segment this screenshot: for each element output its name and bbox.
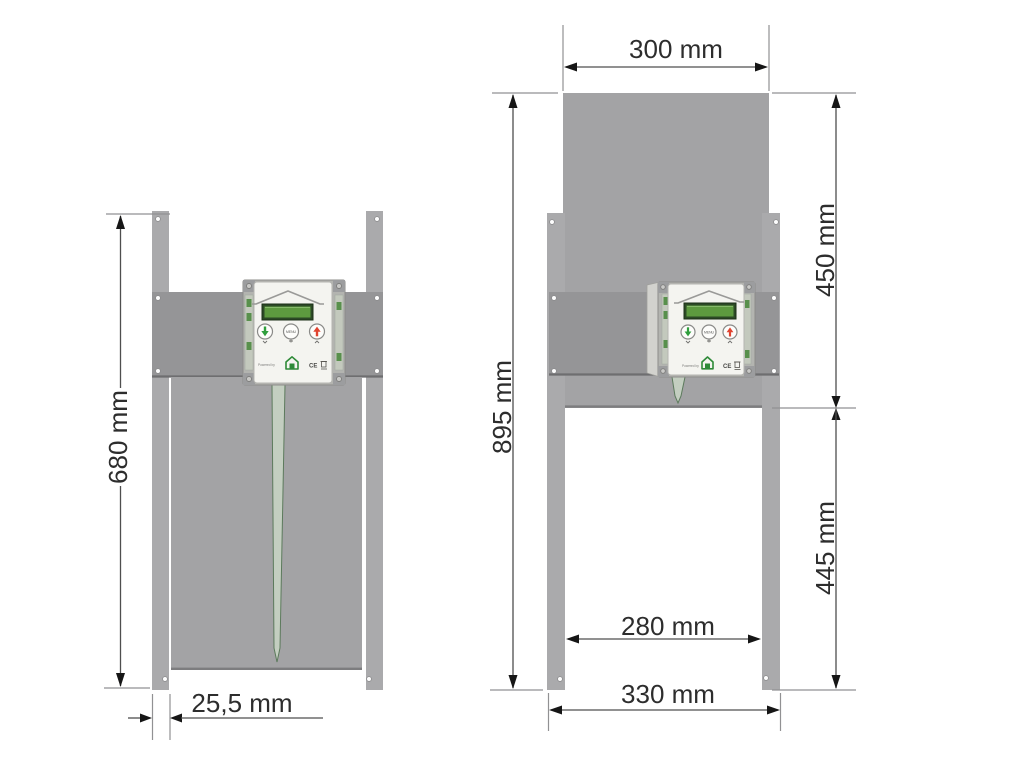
upper-height-dimension-label: 450 mm — [810, 203, 840, 297]
screw-hole — [156, 296, 161, 301]
left-view-rail-left — [152, 211, 169, 690]
opening-width-dimension-label: 280 mm — [621, 611, 715, 641]
lower-height-dimension-label: 445 mm — [810, 501, 840, 595]
screw-hole — [764, 676, 769, 681]
outer-width-dimension-label: 330 mm — [621, 679, 715, 709]
terminal-block — [337, 302, 342, 310]
height-dimension-label: 680 mm — [103, 390, 133, 484]
powered-by-label: Powered by — [258, 363, 275, 367]
left-view: MENU Powered by CE — [101, 211, 383, 740]
lcd-screen — [265, 307, 311, 318]
screw-icon — [337, 284, 342, 289]
menu-button-label: MENU — [704, 330, 715, 334]
powered-by-label: Powered by — [682, 364, 699, 368]
screw-hole — [774, 220, 779, 225]
dimension-280: 280 mm — [566, 611, 761, 644]
terminal-block — [337, 353, 342, 361]
ce-mark-label: CE — [309, 364, 317, 370]
screw-hole — [375, 217, 380, 222]
left-view-door-panel — [171, 377, 362, 670]
dimension-300: 300 mm — [563, 25, 769, 91]
dimension-25-5: 25,5 mm — [128, 688, 323, 740]
screw-hole — [367, 677, 372, 682]
screw-icon — [247, 377, 252, 382]
screw-icon — [337, 377, 342, 382]
terminal-block — [247, 313, 252, 321]
screw-icon — [247, 284, 252, 289]
menu-button-label: MENU — [286, 330, 297, 334]
total-height-dimension-label: 895 mm — [487, 360, 517, 454]
screw-hole — [772, 369, 777, 374]
screw-hole — [550, 220, 555, 225]
screw-hole — [163, 677, 168, 682]
control-unit-perspective: MENU Powered by CE — [647, 282, 755, 377]
screw-hole — [552, 369, 557, 374]
rail-depth-dimension-label: 25,5 mm — [191, 688, 292, 718]
screw-hole — [558, 677, 563, 682]
screw-hole — [156, 217, 161, 222]
terminal-block — [247, 342, 252, 350]
ce-mark-label: CE — [723, 364, 731, 370]
screw-hole — [375, 369, 380, 374]
left-view-rail-right — [366, 211, 383, 690]
screw-hole — [156, 369, 161, 374]
screw-hole — [375, 296, 380, 301]
right-view-rail-right — [762, 213, 780, 690]
right-view: MENU Powered by CE — [487, 25, 856, 731]
terminal-block — [247, 299, 252, 307]
screw-icon — [661, 285, 666, 290]
screw-icon — [661, 369, 666, 374]
control-unit-front: MENU Powered by CE — [243, 280, 345, 385]
dimension-450: 450 mm — [772, 93, 856, 420]
screw-hole — [772, 296, 777, 301]
dimension-445: 445 mm — [772, 410, 856, 690]
screw-icon — [747, 369, 752, 374]
door-width-dimension-label: 300 mm — [629, 34, 723, 64]
diagram-canvas: MENU Powered by CE — [0, 0, 1024, 768]
right-view-rail-left — [547, 213, 565, 690]
dimension-330: 330 mm — [549, 679, 781, 731]
lcd-screen — [687, 306, 734, 317]
terminal-block — [745, 350, 750, 358]
screw-icon — [747, 285, 752, 290]
poultry-door-dimension-diagram: MENU Powered by CE — [0, 0, 1024, 768]
screw-hole — [552, 296, 557, 301]
terminal-block — [745, 300, 750, 308]
